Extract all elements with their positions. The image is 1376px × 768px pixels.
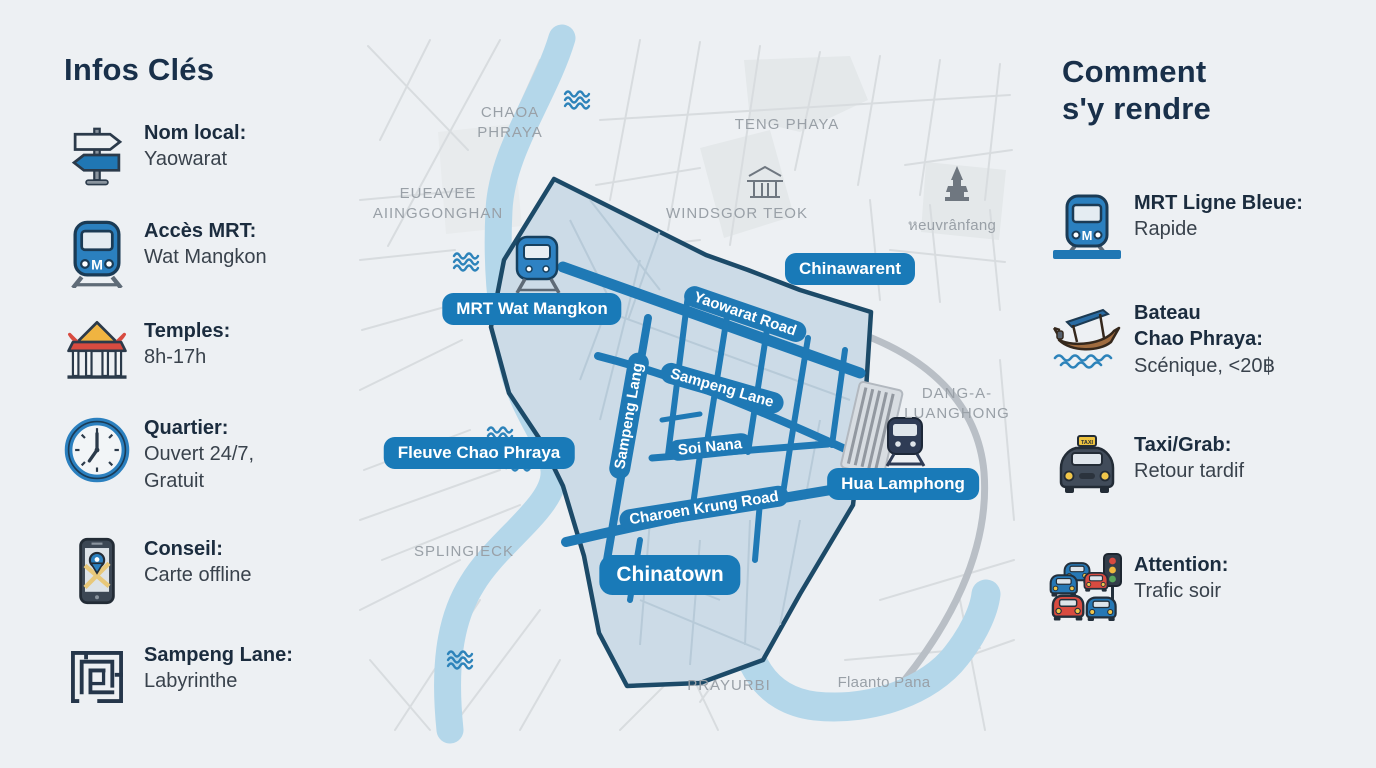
map-area-label: EUEAVEE AIINGGONGHAN [373, 184, 503, 225]
info-item-acces-mrt: M Accès MRT: Wat Mangkon [58, 218, 358, 288]
item-value: Yaowarat [144, 146, 246, 172]
item-value: Scénique, <20฿ [1134, 353, 1275, 379]
info-item-sampeng-lane: Sampeng Lane: Labyrinthe [58, 642, 358, 712]
item-label: Taxi/Grab: [1134, 432, 1244, 458]
item-label: Sampeng Lane: [144, 642, 293, 668]
map-area-label: DANG-A- LUANGHONG [904, 384, 1010, 425]
taxi-icon: TAXI [1048, 432, 1126, 504]
map-area-label: หeuvrânfang [908, 216, 996, 236]
item-label: MRT Ligne Bleue: [1134, 190, 1303, 216]
traffic-jam-icon [1048, 552, 1126, 624]
svg-text:M: M [91, 257, 103, 273]
howto-item-attention: Attention: Trafic soir [1048, 552, 1368, 624]
boat-icon [1048, 300, 1126, 372]
left-panel-title: Infos Clés [64, 52, 214, 89]
badge-chinatown: Chinatown [599, 555, 740, 595]
item-value: 8h-17h [144, 344, 230, 370]
temple-icon [58, 318, 136, 388]
maze-icon [58, 642, 136, 712]
info-item-conseil: Conseil: Carte offline [58, 536, 358, 606]
mrt-train-icon: M [58, 218, 136, 288]
svg-text:TAXI: TAXI [1081, 440, 1094, 446]
howto-item-bateau: Bateau Chao Phraya: Scénique, <20฿ [1048, 300, 1368, 379]
map-area-label: TENG PHAYA [735, 115, 839, 135]
item-label: Nom local: [144, 120, 246, 146]
item-label: Conseil: [144, 536, 251, 562]
item-label: Quartier: [144, 415, 254, 441]
phone-map-icon [58, 536, 136, 606]
item-label: Attention: [1134, 552, 1228, 578]
signpost-icon [58, 120, 136, 190]
item-value: Rapide [1134, 216, 1303, 242]
clock-icon [58, 415, 136, 485]
info-item-nom-local: Nom local: Yaowarat [58, 120, 358, 190]
item-value: Wat Mangkon [144, 244, 267, 270]
badge-fleuve-chao-phraya: Fleuve Chao Phraya [384, 437, 575, 469]
info-item-temples: Temples: 8h-17h [58, 318, 358, 388]
badge-mrt-wat-mangkon: MRT Wat Mangkon [442, 293, 621, 325]
item-value: Labyrinthe [144, 668, 293, 694]
info-item-quartier: Quartier: Ouvert 24/7, Gratuit [58, 415, 358, 494]
mrt-line-icon: M [1048, 190, 1126, 262]
badge-chinawarent: Chinawarent [785, 253, 915, 285]
item-value: Trafic soir [1134, 578, 1228, 604]
howto-item-taxi: TAXI Taxi/Grab: Retour tardif [1048, 432, 1368, 504]
item-value: Carte offline [144, 562, 251, 588]
item-label: Bateau Chao Phraya: [1134, 300, 1275, 353]
map-area-label: WINDSGOR TEOK [666, 204, 808, 224]
item-label: Temples: [144, 318, 230, 344]
map-area-label: PRAYURBI [687, 676, 771, 696]
map-area-label: SPLINGIECK [414, 542, 514, 562]
map-area-label: Flaanto Pana [838, 673, 931, 693]
howto-item-mrt: M MRT Ligne Bleue: Rapide [1048, 190, 1368, 262]
item-value: Retour tardif [1134, 458, 1244, 484]
train-map-icon [887, 418, 924, 466]
svg-text:M: M [1082, 228, 1093, 243]
item-label: Accès MRT: [144, 218, 267, 244]
badge-hua-lamphong: Hua Lamphong [827, 468, 979, 500]
right-panel-title: Comment s'y rendre [1062, 54, 1211, 127]
map-area-label: CHAOA PHRAYA [477, 103, 542, 144]
item-value: Ouvert 24/7, Gratuit [144, 441, 254, 494]
